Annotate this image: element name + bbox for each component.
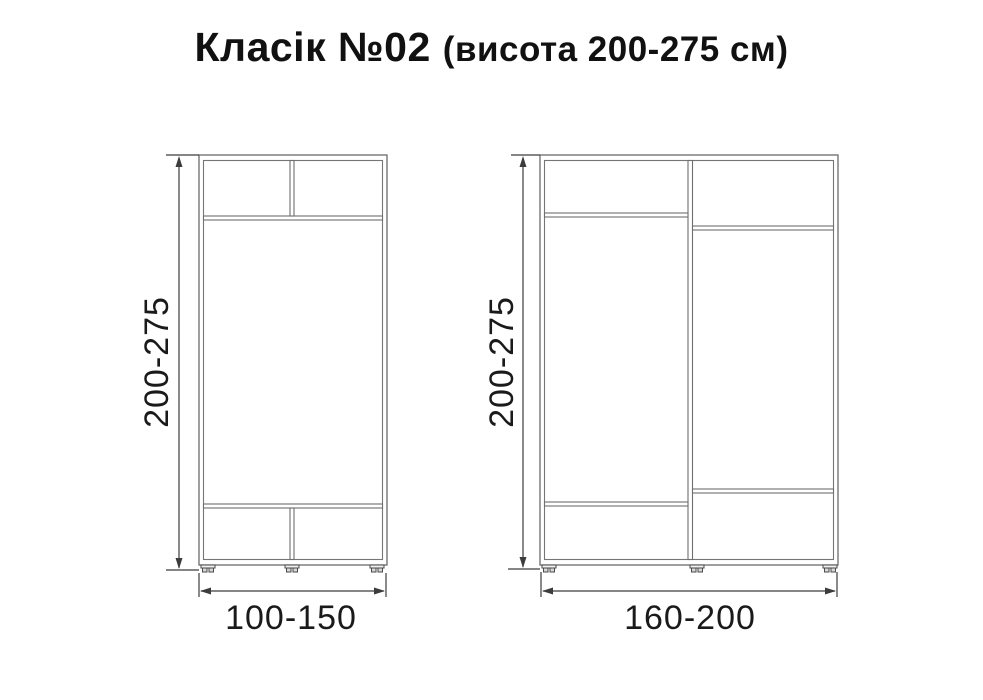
- arrow-down-icon: [176, 558, 183, 569]
- center-divider: [688, 161, 693, 560]
- wardrobe-large-drawing: 200-275 160-200: [483, 155, 838, 637]
- bottom-divider: [290, 508, 294, 560]
- height-dimension-label: 200-275: [483, 296, 521, 428]
- top-divider: [290, 161, 294, 217]
- arrow-left-icon: [542, 588, 553, 595]
- wardrobe-small-drawing: 200-275 100-150: [138, 155, 387, 637]
- height-dimension-label: 200-275: [138, 296, 176, 428]
- right-bottom-shelf: [693, 489, 834, 493]
- top-shelf: [204, 216, 383, 220]
- height-dimension: 200-275: [483, 155, 540, 569]
- width-dimension-label: 160-200: [624, 599, 756, 637]
- arrow-down-icon: [520, 557, 527, 568]
- bottom-shelf: [204, 504, 383, 508]
- arrow-right-icon: [825, 588, 836, 595]
- arrow-up-icon: [520, 156, 527, 167]
- width-dimension: 100-150: [199, 573, 386, 637]
- cabinet-foot: [690, 565, 704, 572]
- cabinet-foot: [542, 565, 556, 572]
- arrow-up-icon: [176, 156, 183, 167]
- cabinet-foot: [201, 565, 215, 572]
- height-dimension: 200-275: [138, 155, 199, 570]
- wardrobe-dimension-drawing: 200-275 100-150: [0, 0, 983, 700]
- width-dimension-label: 100-150: [225, 599, 357, 637]
- diagram-page: Класік №02 (висота 200-275 см): [0, 0, 983, 700]
- left-bottom-shelf: [545, 502, 689, 506]
- arrow-right-icon: [374, 588, 385, 595]
- cabinet-foot: [285, 565, 299, 572]
- cabinet-foot: [370, 565, 384, 572]
- right-top-shelf: [693, 226, 834, 230]
- width-dimension: 160-200: [541, 572, 837, 637]
- left-top-shelf: [545, 213, 689, 217]
- arrow-left-icon: [200, 588, 211, 595]
- cabinet-foot: [823, 565, 837, 572]
